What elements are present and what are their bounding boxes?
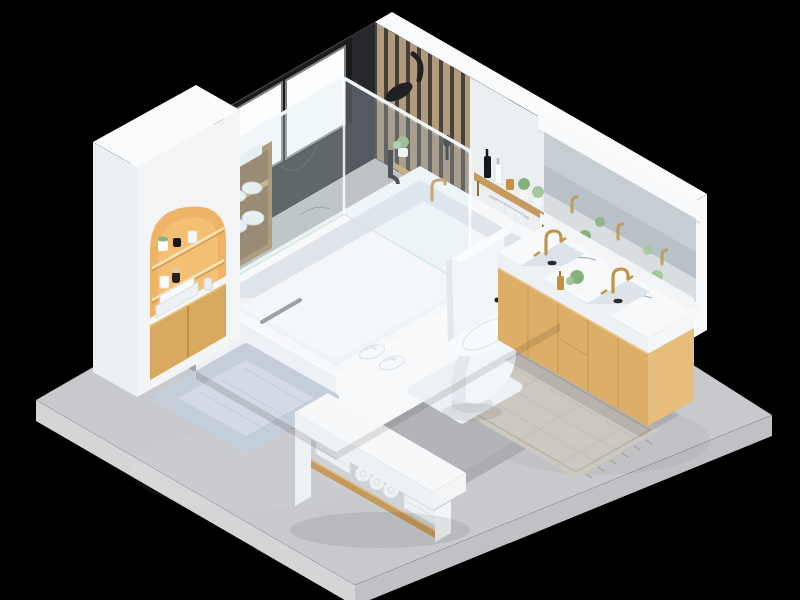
black-soap-bottle [484, 156, 491, 178]
drain [614, 299, 623, 303]
white-soap-bottle [495, 164, 502, 184]
soap-bottle [557, 276, 564, 290]
drain [548, 261, 557, 265]
amber-jar [506, 179, 514, 190]
arched-storage-wall [93, 85, 240, 397]
bathroom-render: Isometric 3D render of a modern bathroom… [0, 0, 800, 600]
isometric-bathroom-scene: Isometric 3D render of a modern bathroom… [0, 0, 800, 600]
